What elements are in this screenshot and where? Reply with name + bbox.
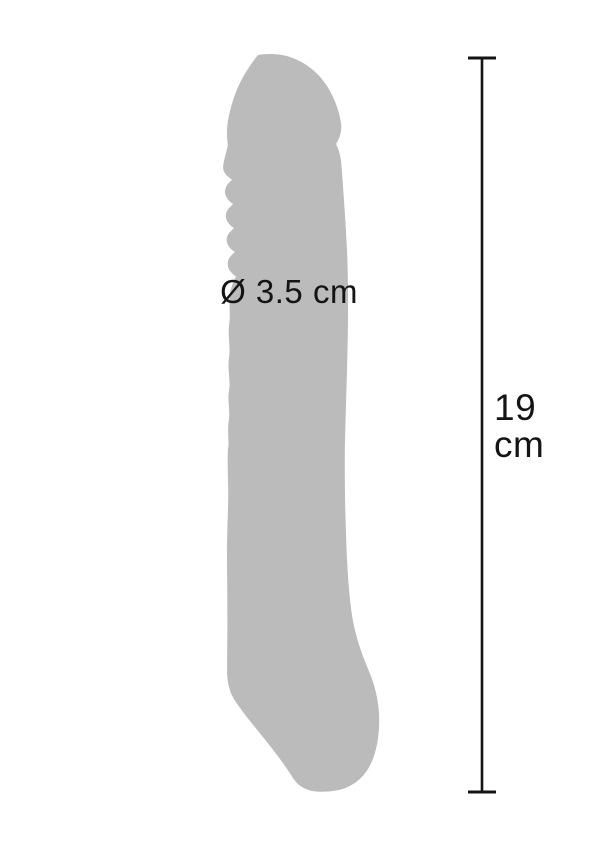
product-silhouette — [223, 54, 379, 792]
product-dimension-diagram: Ø 3.5 cm 19 cm — [0, 0, 600, 850]
length-dimension-line — [468, 58, 496, 792]
length-value-label: 19 — [494, 387, 536, 428]
diameter-label: Ø 3.5 cm — [220, 273, 358, 310]
length-unit-label: cm — [494, 424, 544, 465]
diagram-canvas: Ø 3.5 cm 19 cm — [0, 0, 600, 850]
